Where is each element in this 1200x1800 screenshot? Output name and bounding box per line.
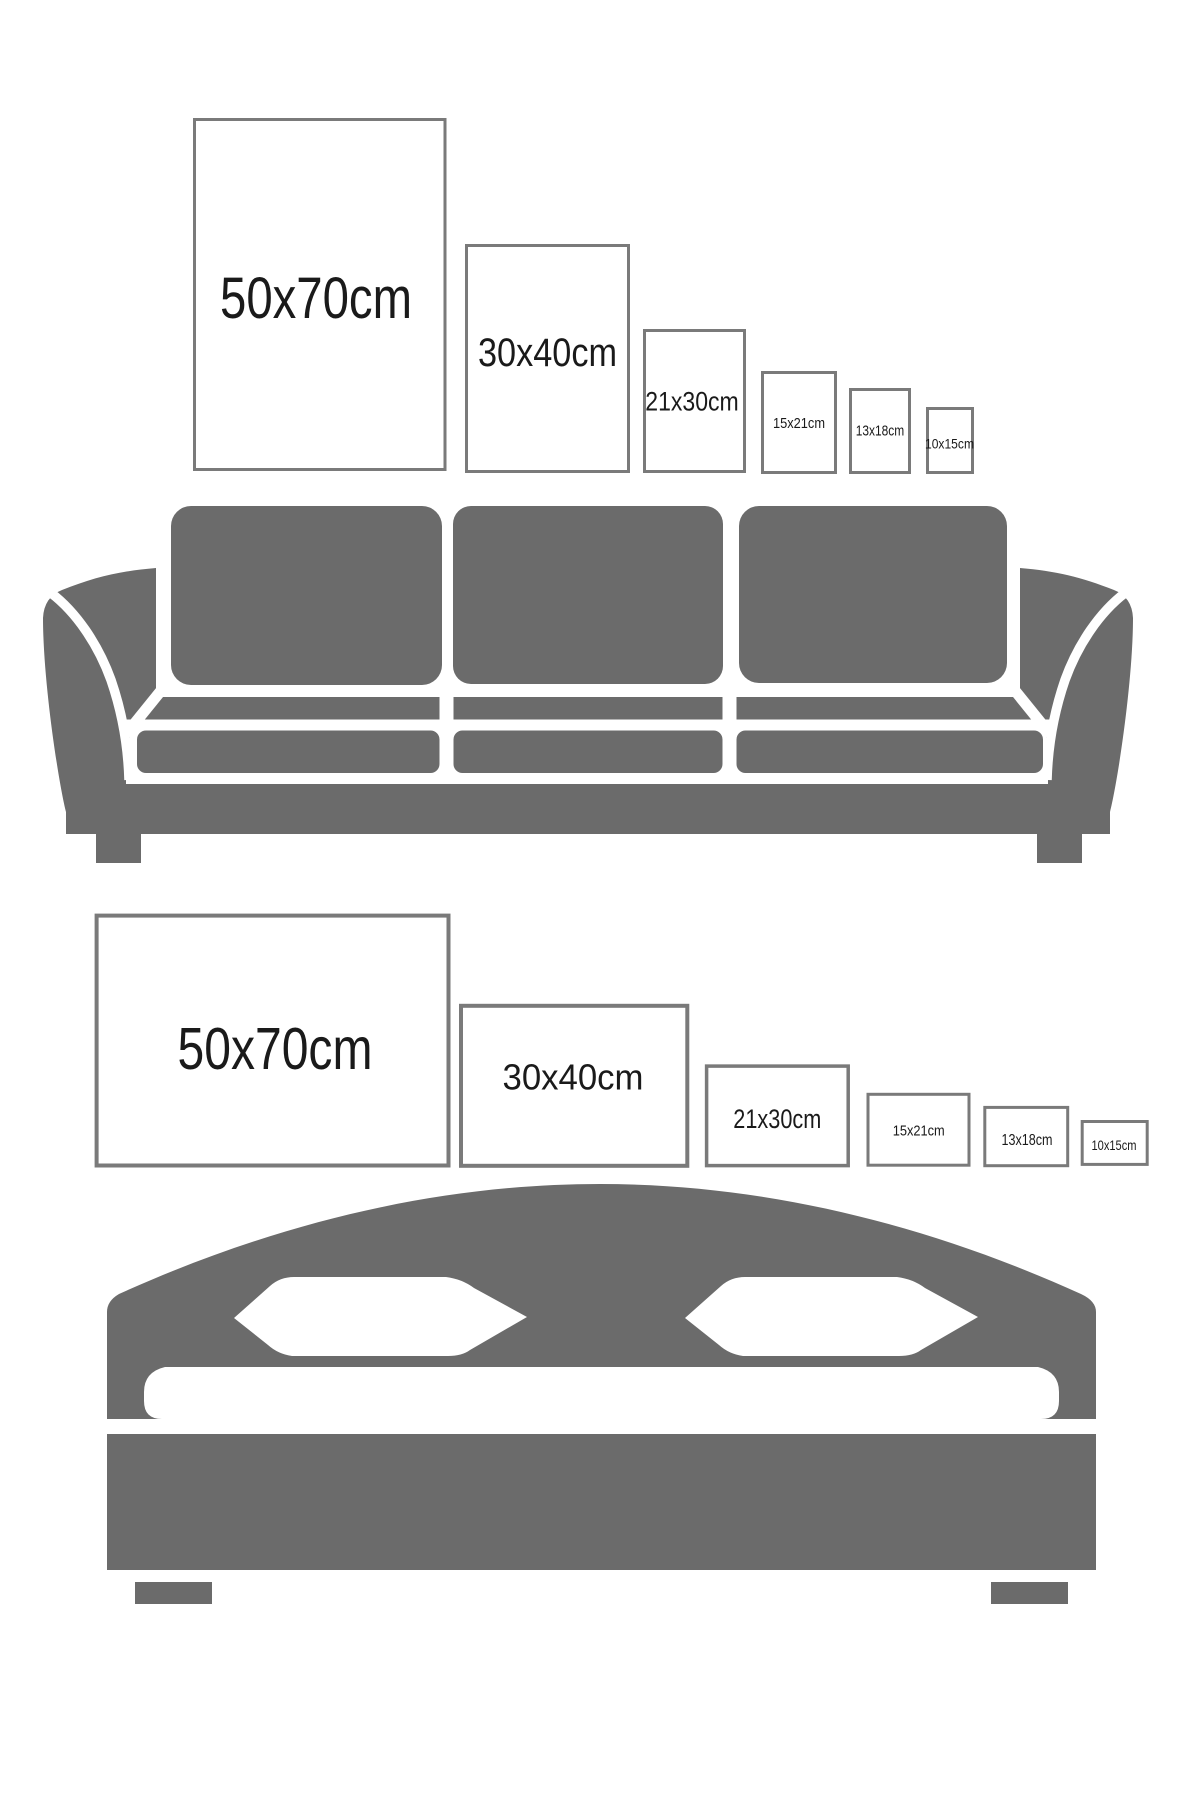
svg-text:21x30cm: 21x30cm bbox=[645, 387, 739, 417]
svg-text:13x18cm: 13x18cm bbox=[856, 424, 905, 440]
svg-text:15x21cm: 15x21cm bbox=[773, 415, 825, 432]
svg-text:50x70cm: 50x70cm bbox=[220, 266, 412, 331]
svg-text:13x18cm: 13x18cm bbox=[1002, 1132, 1053, 1149]
svg-text:30x40cm: 30x40cm bbox=[503, 1057, 644, 1098]
svg-text:15x21cm: 15x21cm bbox=[893, 1123, 945, 1140]
svg-text:50x70cm: 50x70cm bbox=[178, 1016, 373, 1082]
svg-text:30x40cm: 30x40cm bbox=[478, 331, 617, 375]
svg-text:21x30cm: 21x30cm bbox=[733, 1104, 821, 1134]
svg-text:10x15cm: 10x15cm bbox=[1092, 1137, 1137, 1153]
svg-text:10x15cm: 10x15cm bbox=[925, 437, 974, 452]
